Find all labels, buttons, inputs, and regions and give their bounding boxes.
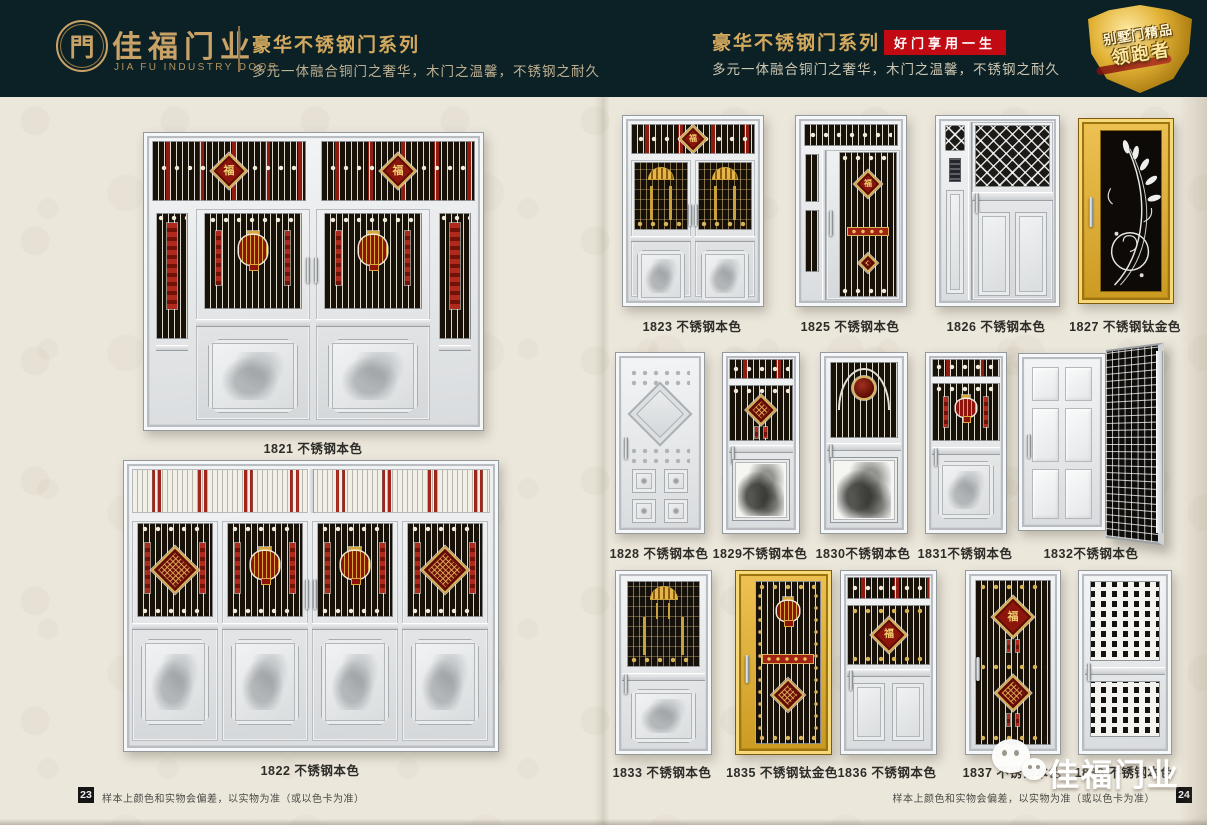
door-handle [829, 210, 833, 236]
leaf-window-grille [755, 581, 821, 744]
door-label: 1829不锈钢本色 [713, 543, 808, 562]
square-emboss [632, 469, 656, 493]
door-handle [694, 204, 698, 226]
brand-logo-icon: 門 [56, 20, 108, 72]
door-label: 1825 不锈钢本色 [801, 316, 900, 335]
door-1830-image [820, 352, 908, 534]
door-1832-image [1018, 351, 1164, 533]
lantern-ornament [239, 231, 267, 271]
door-leaf [631, 160, 691, 297]
leaf-window-grille [137, 523, 213, 617]
door-handle [975, 193, 979, 213]
emboss-panel [231, 639, 299, 725]
door-1838-body [1085, 577, 1165, 748]
firecracker-ornament [450, 223, 460, 309]
side-grille [156, 213, 188, 339]
lantern-ornament [359, 231, 387, 271]
door-1822-image [123, 460, 499, 752]
door-handle [624, 674, 628, 694]
door-leaf [402, 521, 488, 741]
door-1833-body [622, 577, 705, 748]
red-band-ornament [848, 228, 889, 235]
fan-ornament [650, 586, 678, 600]
square-emboss [664, 499, 688, 523]
lantern-ornament [777, 597, 799, 627]
leaf-window-grille [324, 213, 422, 309]
artwork-panel [732, 459, 790, 521]
mid-grille [932, 383, 1000, 441]
door-handle [1087, 663, 1091, 681]
door-1821-body: 福 福 [150, 139, 477, 424]
knot-diamond-ornament [745, 394, 776, 425]
series-tagline-right: 多元一体融合铜门之奢华，木门之温馨，不锈钢之耐久 [712, 58, 1060, 78]
transom-grille [804, 124, 898, 146]
side-grille [439, 213, 471, 339]
leaf-window-grille [227, 523, 303, 617]
lattice-panel [1090, 581, 1160, 661]
door-handle [305, 579, 309, 609]
door-1836-body: 福 [847, 577, 930, 748]
watermark-text: 佳福门业 [1048, 750, 1180, 795]
door-handle [313, 579, 317, 609]
door-1829-image [722, 352, 800, 534]
emboss-panel [631, 689, 696, 743]
door-1823-body: 福 [629, 122, 757, 300]
knot-diamond-ornament [151, 546, 199, 594]
door-label: 1828 不锈钢本色 [610, 543, 709, 562]
door-1830-body [827, 359, 901, 527]
raised-panel [1015, 212, 1047, 296]
transom-grille: 福 [631, 124, 755, 154]
door-1829-body [729, 359, 793, 527]
door-handle [688, 204, 692, 226]
knot-diamond-ornament [995, 675, 1032, 712]
fu-diamond-ornament: 福 [870, 617, 907, 654]
door-label: 1823 不锈钢本色 [643, 316, 742, 335]
door-label: 1827 不锈钢钛金色 [1069, 316, 1181, 335]
door-handle [976, 657, 980, 681]
transom-grille [847, 577, 930, 599]
door-1838-image [1078, 570, 1172, 755]
raised-panel [978, 212, 1010, 296]
door-leaf: 福 [826, 150, 900, 300]
raised-panel [892, 683, 924, 741]
door-1837-image: 福 [965, 570, 1061, 755]
door-1833-image [615, 570, 712, 755]
lantern-ornament [341, 547, 369, 585]
door-leaf [132, 521, 218, 741]
fu-diamond-ornament: 福 [211, 153, 248, 190]
door-1821-image: 福 福 [143, 132, 484, 431]
door-1835-image [735, 570, 832, 755]
side-grille [805, 210, 819, 272]
door-handle [1027, 434, 1031, 458]
door-leaf [196, 209, 310, 420]
wechat-icon-small [1022, 758, 1046, 780]
leaf-window-grille [627, 581, 700, 667]
emboss-panel [208, 339, 298, 413]
door-1828-body [622, 359, 698, 527]
leaf-window-grille [204, 213, 302, 309]
door-label: 1826 不锈钢本色 [947, 316, 1046, 335]
mid-grille: 福 [847, 605, 930, 665]
header-bar: 門 佳福门业 JIA FU INDUSTRY DOOR 豪华不锈钢门系列 多元一… [0, 0, 1207, 97]
door-handle [934, 448, 938, 466]
emboss-panel [637, 250, 685, 300]
door-1827-body [1085, 125, 1167, 297]
lantern-ornament [251, 547, 279, 585]
intercom-unit [949, 158, 961, 182]
catalog-spread: 門 佳福门业 JIA FU INDUSTRY DOOR 豪华不锈钢门系列 多元一… [0, 0, 1207, 825]
door-1831-image [925, 352, 1007, 534]
leaf-window-grille [407, 523, 483, 617]
diamond-emboss [627, 381, 692, 446]
door-handle [1089, 197, 1093, 227]
mid-grille [729, 385, 793, 441]
door-label: 1835 不锈钢钛金色 [726, 762, 838, 781]
door-1828-image [615, 352, 705, 534]
transom-grille: 福 [152, 141, 306, 201]
footer-note-left: 样本上颜色和实物会偏差，以实物为准（或以色卡为准） [102, 790, 365, 805]
door-handle [306, 257, 310, 283]
series-tagline-left: 多元一体融合铜门之奢华，木门之温馨，不锈钢之耐久 [252, 60, 600, 80]
knot-diamond-ornament [421, 546, 469, 594]
lantern-ornament [956, 395, 976, 423]
lattice-grille [975, 125, 1050, 187]
door-label: 1832不锈钢本色 [1044, 543, 1139, 562]
door-leaf [316, 209, 430, 420]
door-leaf [695, 160, 755, 297]
fan-ornament [648, 167, 674, 180]
knot-diamond-ornament [771, 678, 805, 712]
door-1832-main-leaf [1018, 353, 1106, 531]
door-jamb [1156, 351, 1163, 533]
page-number-left: 23 [78, 787, 94, 803]
leaf-window-grille [698, 162, 752, 230]
square-emboss [632, 499, 656, 523]
fu-diamond-ornament: 福 [992, 596, 1034, 638]
emboss-panel [141, 639, 209, 725]
slogan-badge: 好门享用一生 [884, 30, 1006, 55]
transom-grille: 福 [321, 141, 475, 201]
arch-grille [830, 362, 898, 438]
door-1836-image: 福 [840, 570, 937, 755]
side-grille [805, 154, 819, 202]
fu-diamond-ornament: 福 [380, 153, 417, 190]
door-1837-body: 福 [972, 577, 1054, 748]
transom-grille [729, 359, 793, 379]
fu-diamond-ornament: 福 [854, 170, 882, 198]
door-1825-body: 福 [802, 122, 900, 300]
lattice-panel [1090, 681, 1160, 737]
door-1832-body [1025, 360, 1099, 524]
knot-diamond-ornament [858, 253, 878, 273]
transom-grille [932, 359, 1000, 377]
fu-diamond-ornament: 福 [679, 125, 707, 153]
door-leaf [312, 521, 398, 741]
door-1822-body [130, 467, 492, 745]
door-handle [745, 655, 749, 683]
scrollwork-panel [1100, 130, 1162, 292]
raised-panel [853, 683, 885, 741]
leaf-window-grille: 福 [975, 580, 1051, 745]
series-title-right: 豪华不锈钢门系列 [712, 28, 880, 55]
door-leaf [972, 122, 1053, 300]
door-handle [624, 437, 628, 459]
door-1835-body [742, 577, 825, 748]
scrollwork-art [1101, 131, 1161, 291]
door-leaf [222, 521, 308, 741]
shield-badge: 别墅门精品 领跑者 [1088, 5, 1192, 93]
artwork-panel [830, 457, 898, 523]
door-1825-image: 福 [795, 115, 907, 307]
emboss-panel [411, 639, 479, 725]
door-handle [314, 257, 318, 283]
door-label: 1836 不锈钢本色 [838, 762, 937, 781]
leaf-window-grille: 福 [839, 152, 897, 297]
door-label: 1830不锈钢本色 [816, 543, 911, 562]
emboss-panel [938, 461, 994, 519]
door-1826-image [935, 115, 1060, 307]
emboss-panel [321, 639, 389, 725]
square-emboss [664, 469, 688, 493]
header-divider [238, 26, 240, 72]
series-title-left: 豪华不锈钢门系列 [252, 30, 420, 57]
brand-name: 佳福门业 [112, 22, 256, 66]
door-label: 1831不锈钢本色 [918, 543, 1013, 562]
lattice-grille [945, 125, 965, 151]
emboss-panel [946, 190, 964, 294]
firecracker-ornament [167, 223, 177, 309]
logo-glyph: 門 [69, 28, 94, 64]
leaf-window-grille [317, 523, 393, 617]
door-label: 1822 不锈钢本色 [261, 760, 360, 779]
door-1827-image [1078, 118, 1174, 304]
door-label: 1821 不锈钢本色 [264, 438, 363, 457]
red-band-ornament [763, 655, 813, 663]
medallion-ornament [854, 378, 874, 398]
door-1831-body [932, 359, 1000, 527]
door-1826-body [942, 122, 1053, 300]
leaf-window-grille [634, 162, 688, 230]
emboss-panel [328, 339, 418, 413]
fan-ornament [712, 167, 738, 180]
emboss-panel [701, 250, 749, 300]
door-1823-image: 福 [622, 115, 764, 307]
door-label: 1833 不锈钢本色 [613, 762, 712, 781]
